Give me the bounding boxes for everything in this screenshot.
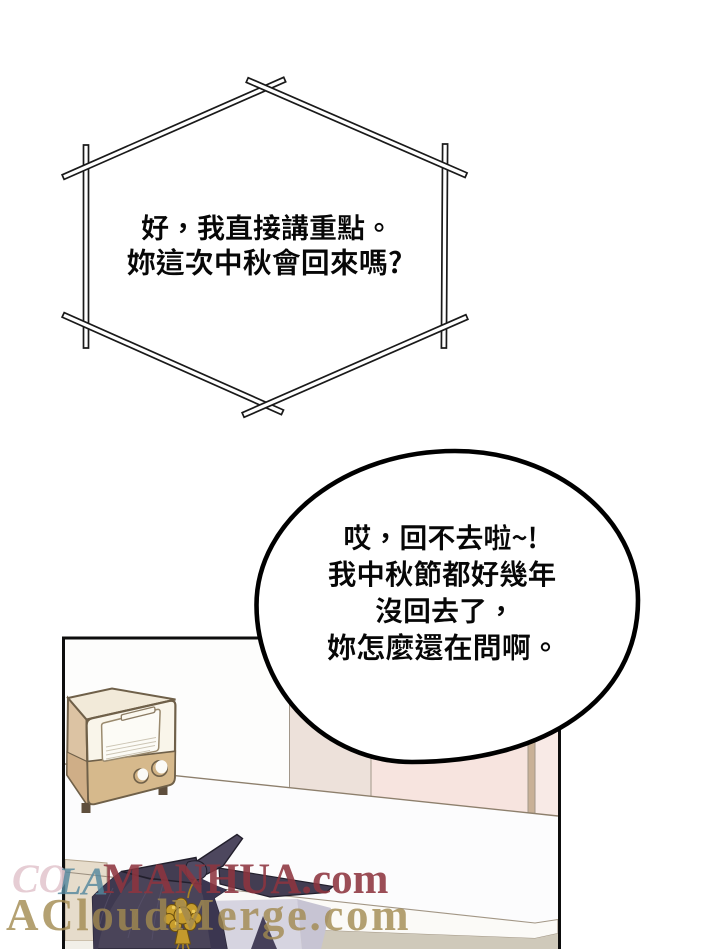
svg-text:ACloudMerge.com: ACloudMerge.com	[6, 890, 411, 940]
